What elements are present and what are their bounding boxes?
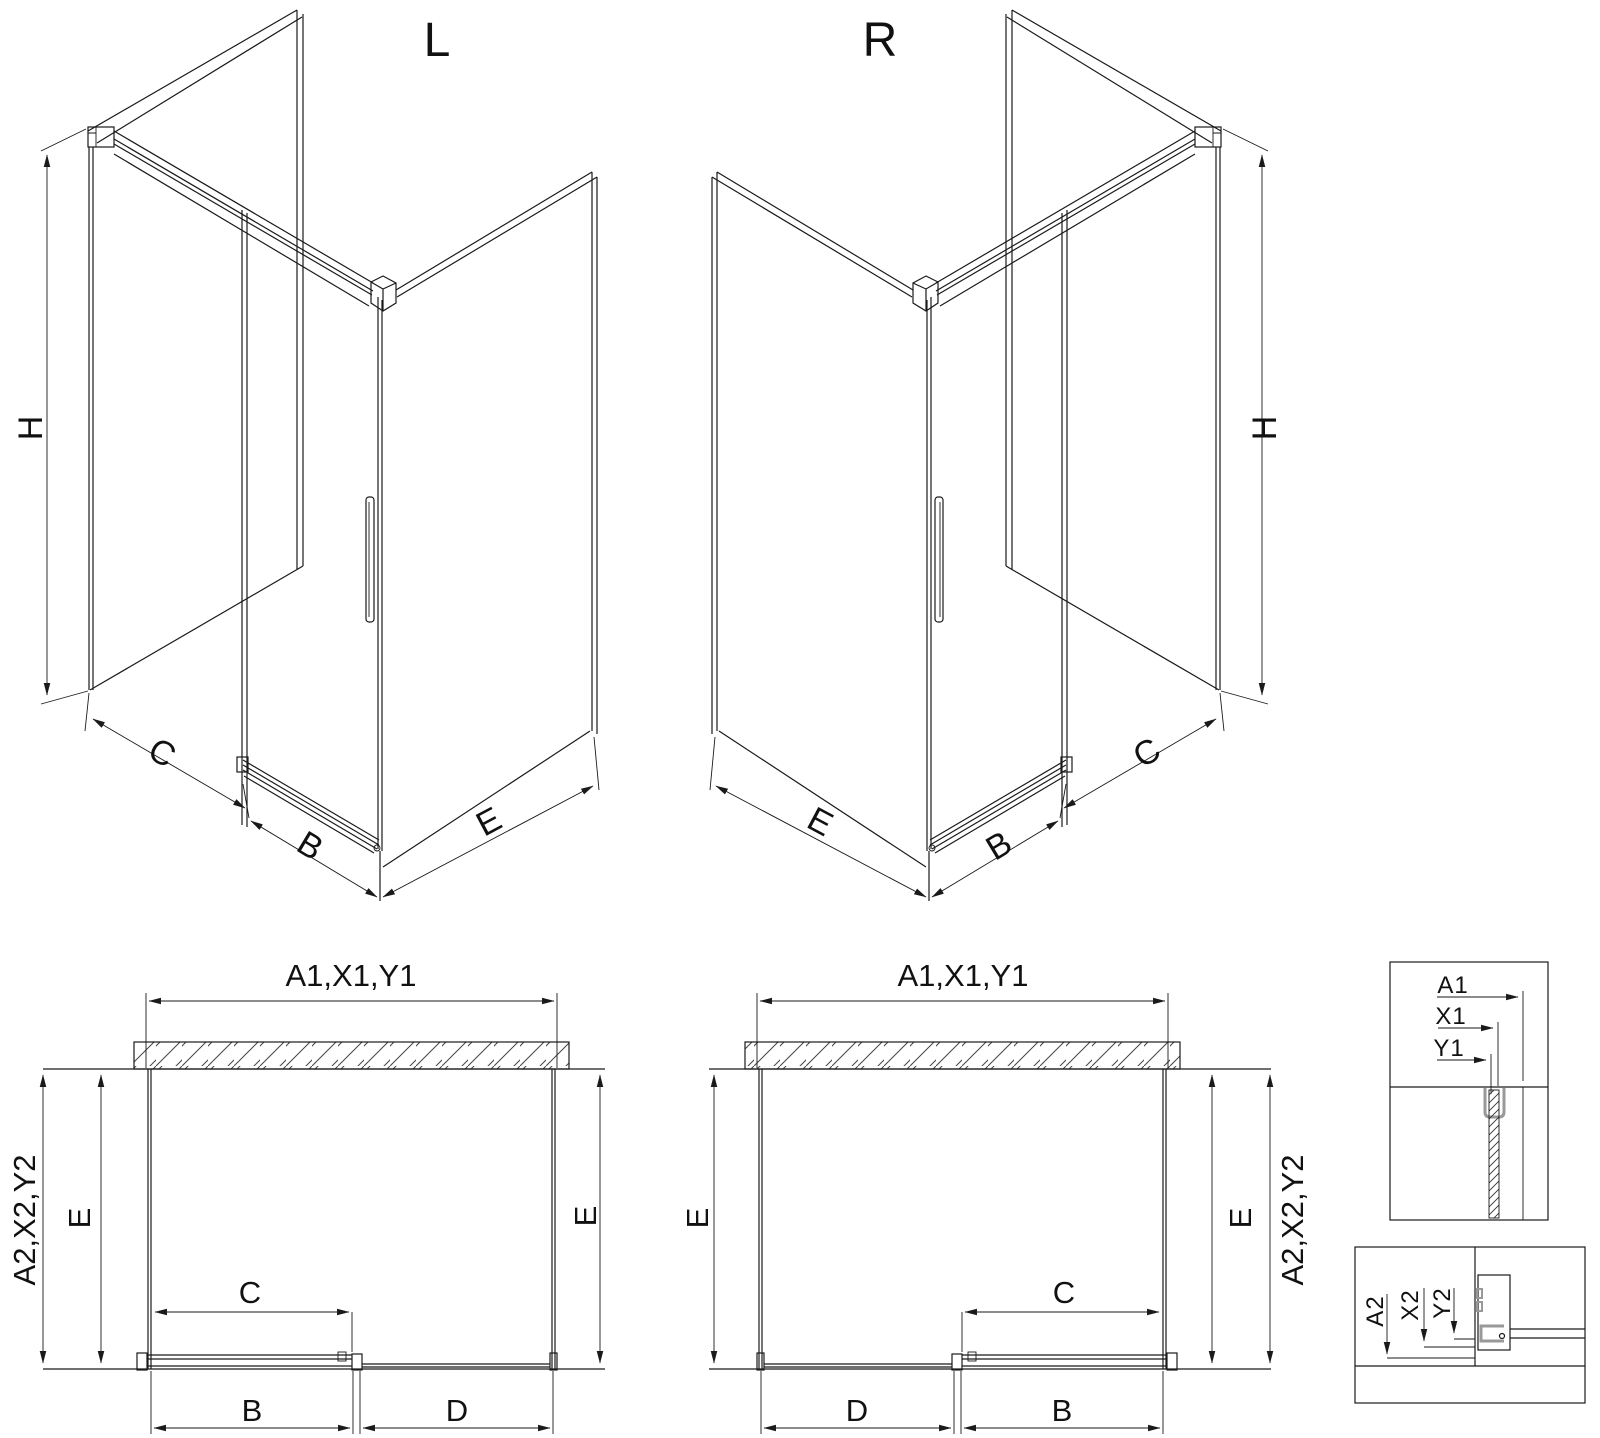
iso-left-dim-e-label: E xyxy=(470,800,508,844)
iso-left-dim-c: C xyxy=(85,693,249,818)
plan-mid-dim-e-left-label: E xyxy=(680,1208,715,1229)
iso-left-wall-profile xyxy=(88,127,114,147)
iso-left-dim-h-label: H xyxy=(12,416,50,441)
plan-mid-fixed-panel-d xyxy=(757,1353,952,1370)
iso-left-corner-edge xyxy=(378,297,382,901)
iso-right-corner-edge xyxy=(927,297,931,901)
iso-left-corner-post xyxy=(371,276,396,311)
detail-track-profile: A2 X2 Y2 xyxy=(1355,1247,1585,1403)
iso-right-dim-c: C xyxy=(1060,693,1224,818)
detail-track-frame xyxy=(1355,1247,1585,1403)
plan-left-dim-e-right-label: E xyxy=(568,1206,603,1227)
iso-left-panel-e xyxy=(383,172,597,867)
plan-left-dim-c-label: C xyxy=(239,1275,261,1310)
plan-left-dim-a2-label: A2,X2,Y2 xyxy=(7,1155,42,1286)
iso-left-panel-c xyxy=(88,10,303,690)
iso-left-door-handle xyxy=(366,497,374,622)
plan-mid-dim-a1-label: A1,X1,Y1 xyxy=(898,958,1029,993)
plan-left-dim-b-label: B xyxy=(242,1393,263,1428)
detail-wall-dim-y1: Y1 xyxy=(1433,1035,1491,1094)
iso-right-dim-h-label: H xyxy=(1246,416,1284,441)
plan-left-door-track xyxy=(137,1352,362,1370)
plan-mid-dim-c: C xyxy=(962,1275,1159,1352)
plan-left-dim-d-label: D xyxy=(446,1393,468,1428)
plan-mid-dim-a2: A2,X2,Y2 xyxy=(1270,1075,1310,1363)
iso-right-door-handle xyxy=(935,497,943,622)
iso-right-wall-profile xyxy=(1195,127,1221,147)
iso-right-dim-e-label: E xyxy=(801,800,839,844)
plan-mid-dim-b: B xyxy=(964,1393,1160,1428)
plan-left-dim-a2: A2,X2,Y2 xyxy=(7,1075,43,1363)
plan-mid-dim-c-label: C xyxy=(1053,1275,1075,1310)
detail-track-roller xyxy=(1500,1334,1505,1339)
iso-right-top-rail xyxy=(936,131,1195,306)
detail-track-dim-y2-label: Y2 xyxy=(1429,1287,1456,1318)
iso-left-dim-c-label: C xyxy=(142,730,183,775)
iso-right-dim-c-label: C xyxy=(1127,730,1168,775)
plan-left-dim-e-right: E xyxy=(568,1075,603,1363)
plan-left-figure: A1,X1,Y1 A2,X2,Y2 E E C xyxy=(7,958,605,1434)
plan-mid-dim-d: D xyxy=(764,1393,951,1428)
plan-mid-dim-e-right-label: E xyxy=(1223,1208,1258,1229)
detail-wall-dim-x1-label: X1 xyxy=(1435,1003,1466,1030)
iso-right-title: R xyxy=(863,14,898,67)
detail-wall-glass-section xyxy=(1489,1090,1499,1218)
detail-wall-dim-a1-label: A1 xyxy=(1437,972,1468,999)
detail-track-dim-x2-label: X2 xyxy=(1397,1289,1424,1320)
iso-left-figure: H C B E L xyxy=(12,10,599,901)
plan-mid-dim-d-label: D xyxy=(846,1393,868,1428)
plan-mid-figure: A1,X1,Y1 E E A2,X2,Y2 C xyxy=(680,958,1310,1434)
detail-wall-frame xyxy=(1390,962,1548,1220)
plan-left-dim-b: B xyxy=(154,1393,350,1428)
iso-left-dim-h: H xyxy=(12,129,88,704)
iso-right-panel-e xyxy=(712,172,926,867)
plan-left-dim-a1-label: A1,X1,Y1 xyxy=(286,958,417,993)
iso-right-door-edge xyxy=(1062,210,1067,827)
iso-left-top-rail xyxy=(114,131,373,306)
plan-left-dim-d: D xyxy=(363,1393,550,1428)
plan-left-dim-c: C xyxy=(155,1275,352,1352)
plan-left-baselines xyxy=(43,1069,605,1369)
plan-mid-door-track xyxy=(952,1352,1177,1370)
plan-mid-wall xyxy=(745,1042,1180,1069)
plan-left-glass-edges xyxy=(148,1069,555,1369)
plan-mid-dim-e-right: E xyxy=(1212,1075,1258,1363)
plan-mid-ext-lines xyxy=(761,1371,1163,1434)
detail-track-dim-y2: Y2 xyxy=(1429,1287,1475,1339)
iso-left-door-edge xyxy=(242,210,247,827)
plan-left-dim-e-left-label: E xyxy=(62,1208,97,1229)
plan-mid-dim-b-label: B xyxy=(1052,1393,1073,1428)
iso-right-dim-h: H xyxy=(1221,129,1284,704)
iso-right-dim-e: E xyxy=(710,737,926,897)
plan-mid-dim-e-left: E xyxy=(680,1075,715,1363)
plan-left-wall xyxy=(134,1042,569,1069)
detail-wall-dim-y1-label: Y1 xyxy=(1433,1035,1464,1062)
plan-mid-baselines xyxy=(709,1069,1271,1369)
plan-mid-dim-a2-label: A2,X2,Y2 xyxy=(1275,1155,1310,1286)
detail-track-dim-a2-label: A2 xyxy=(1362,1295,1389,1326)
plan-left-fixed-panel-d xyxy=(362,1353,557,1370)
iso-right-dim-b-label: B xyxy=(979,824,1018,868)
detail-wall-profile: A1 X1 Y1 xyxy=(1390,962,1548,1220)
iso-right-corner-post xyxy=(913,276,938,311)
iso-left-dim-b-label: B xyxy=(290,824,329,868)
detail-track-profile-section xyxy=(1477,1275,1585,1350)
plan-left-ext-lines xyxy=(151,1371,553,1434)
plan-mid-glass-edges xyxy=(759,1069,1166,1369)
iso-right-panel-c xyxy=(1006,10,1221,690)
iso-left-dim-e: E xyxy=(383,737,599,897)
technical-drawing-canvas: H C B E L xyxy=(0,0,1600,1438)
iso-right-figure: H C B E R xyxy=(710,10,1284,901)
iso-left-title: L xyxy=(424,14,451,67)
plan-left-dim-e-left: E xyxy=(62,1075,101,1363)
drawing-svg: H C B E L xyxy=(0,0,1600,1438)
